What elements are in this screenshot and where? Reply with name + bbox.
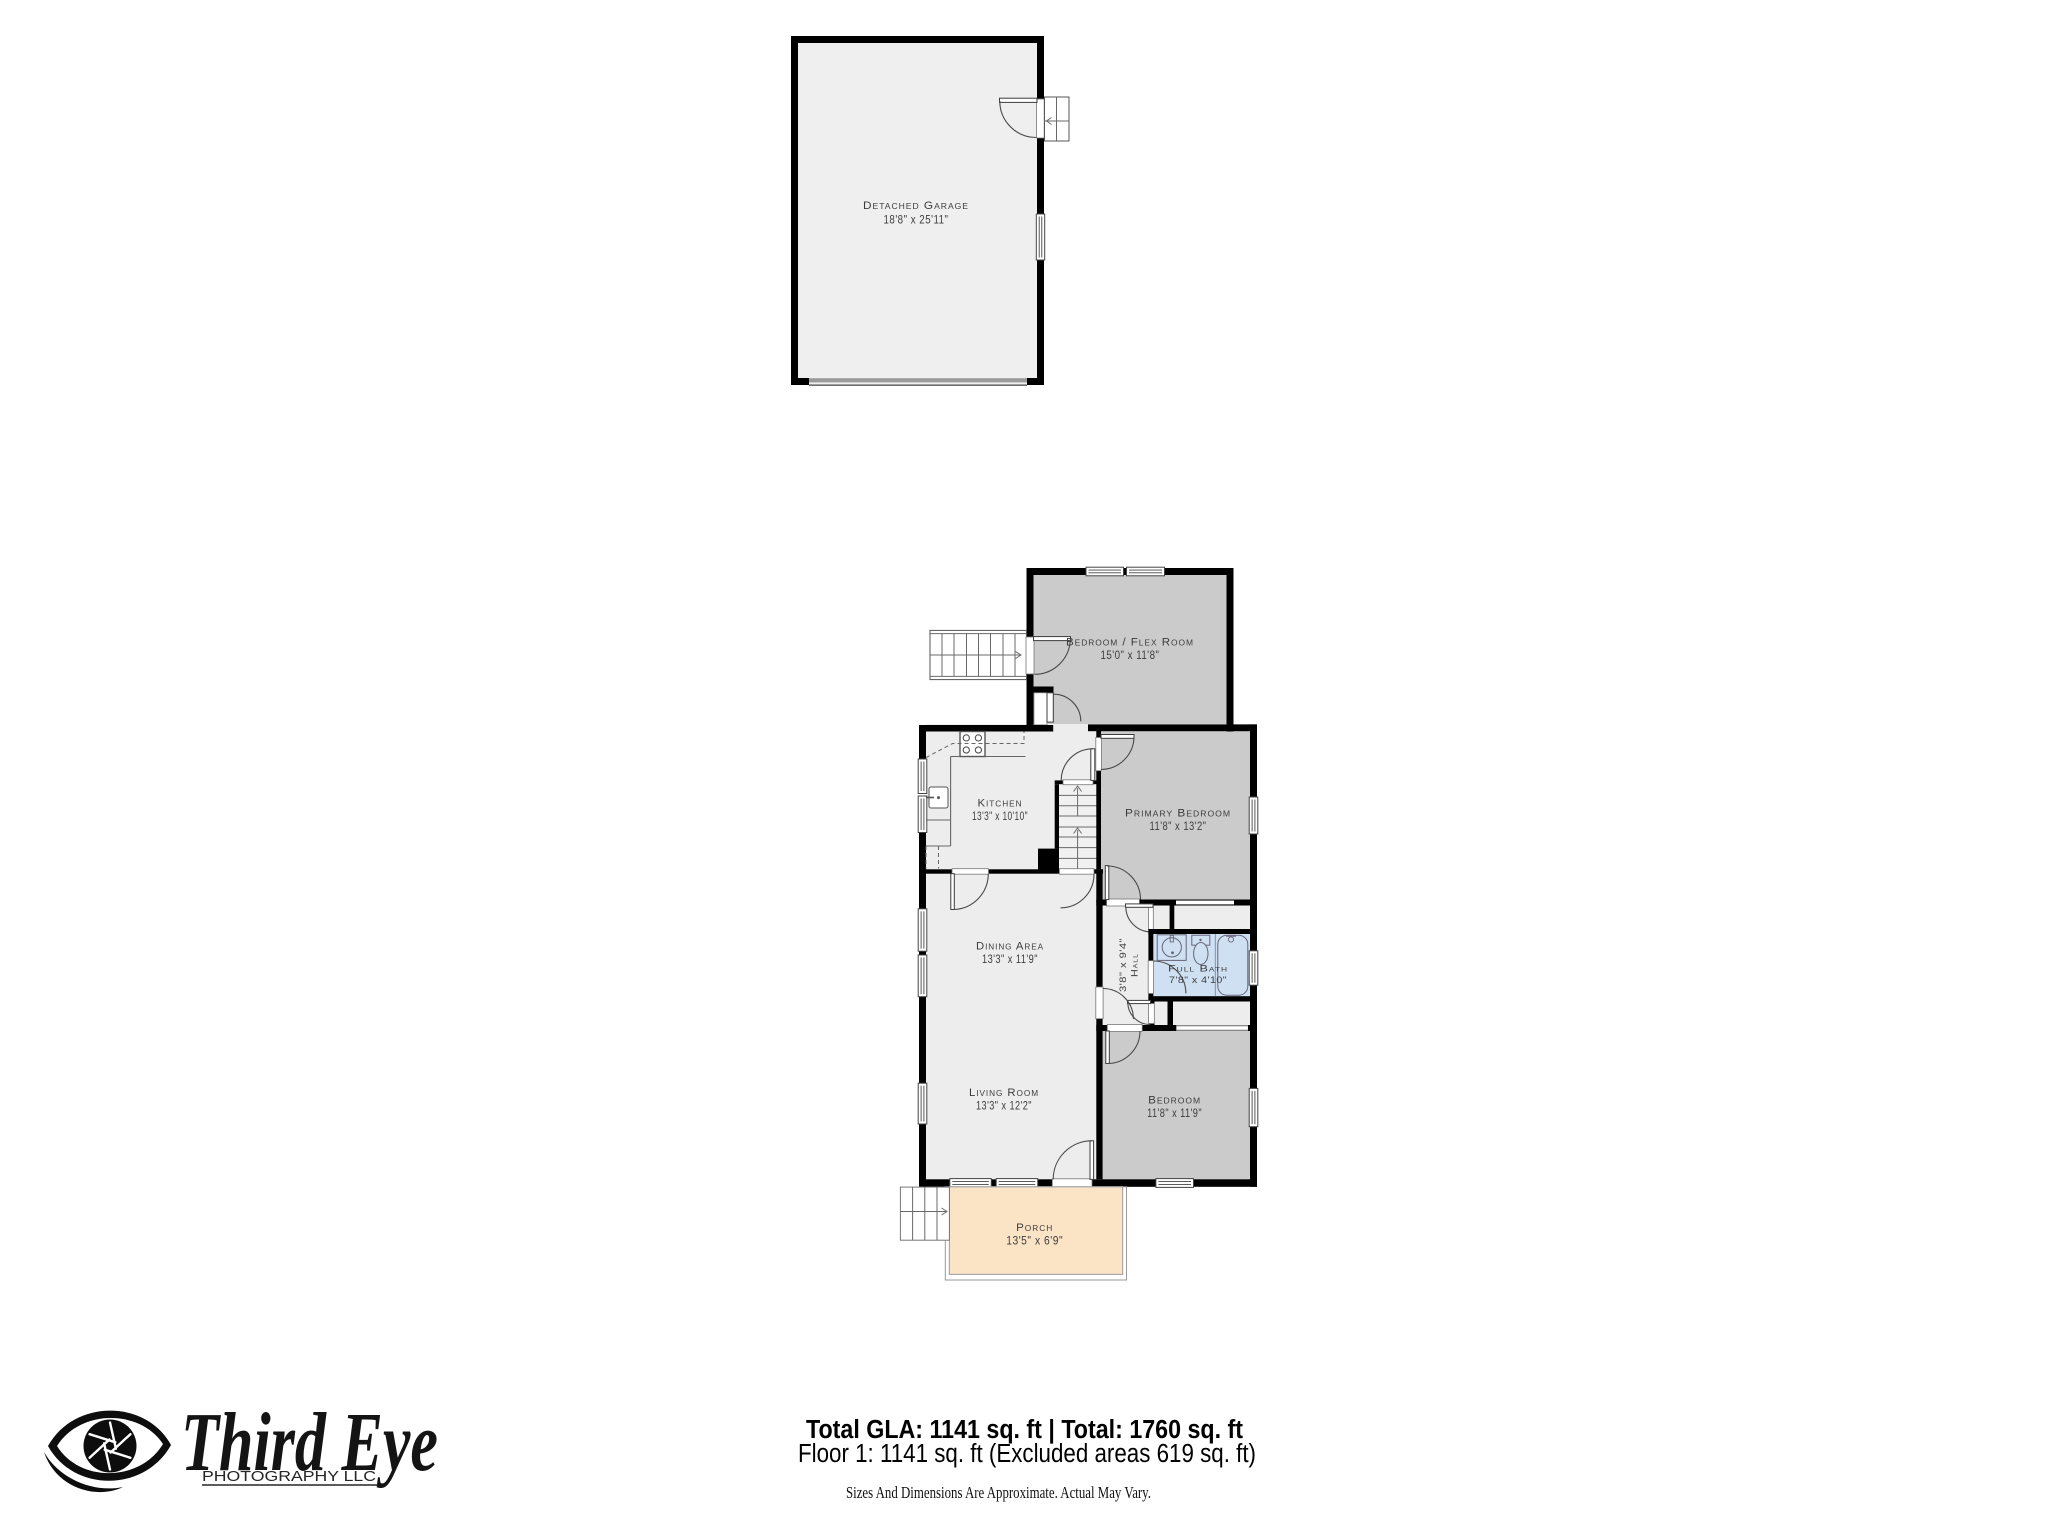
svg-text:PHOTOGRAPHY LLC: PHOTOGRAPHY LLC: [202, 1469, 376, 1485]
svg-text:13'3" x 10'10": 13'3" x 10'10": [972, 809, 1028, 823]
svg-text:Detached Garage: Detached Garage: [863, 200, 969, 212]
svg-text:Bedroom: Bedroom: [1148, 1095, 1201, 1107]
svg-text:Bedroom / Flex Room: Bedroom / Flex Room: [1066, 637, 1194, 649]
svg-text:Hall: Hall: [1130, 953, 1140, 977]
svg-text:Floor 1: 1141 sq. ft (Excluded: Floor 1: 1141 sq. ft (Excluded areas 619…: [798, 1440, 1256, 1468]
svg-text:11'8" x 11'9": 11'8" x 11'9": [1147, 1106, 1202, 1120]
svg-text:Porch: Porch: [1016, 1222, 1053, 1234]
svg-text:3'8" x 9'4": 3'8" x 9'4": [1118, 938, 1129, 992]
svg-text:11'8" x 13'2": 11'8" x 13'2": [1150, 819, 1207, 833]
svg-text:Dining Area: Dining Area: [976, 941, 1044, 953]
svg-text:13'3" x 11'9": 13'3" x 11'9": [982, 952, 1038, 966]
svg-text:Living Room: Living Room: [969, 1087, 1039, 1099]
svg-text:18'8" x 25'11": 18'8" x 25'11": [884, 213, 949, 227]
svg-text:15'0" x 11'8": 15'0" x 11'8": [1101, 648, 1160, 662]
svg-text:13'5" x 6'9": 13'5" x 6'9": [1006, 1234, 1063, 1248]
svg-text:Primary Bedroom: Primary Bedroom: [1125, 808, 1231, 820]
svg-text:Sizes And Dimensions Are Appro: Sizes And Dimensions Are Approximate. Ac…: [846, 1483, 1151, 1502]
svg-text:13'3" x 12'2": 13'3" x 12'2": [976, 1099, 1032, 1113]
svg-text:Kitchen: Kitchen: [978, 798, 1023, 810]
svg-text:Full Bath: Full Bath: [1168, 964, 1228, 974]
svg-text:7'8" x 4'10": 7'8" x 4'10": [1169, 975, 1227, 986]
